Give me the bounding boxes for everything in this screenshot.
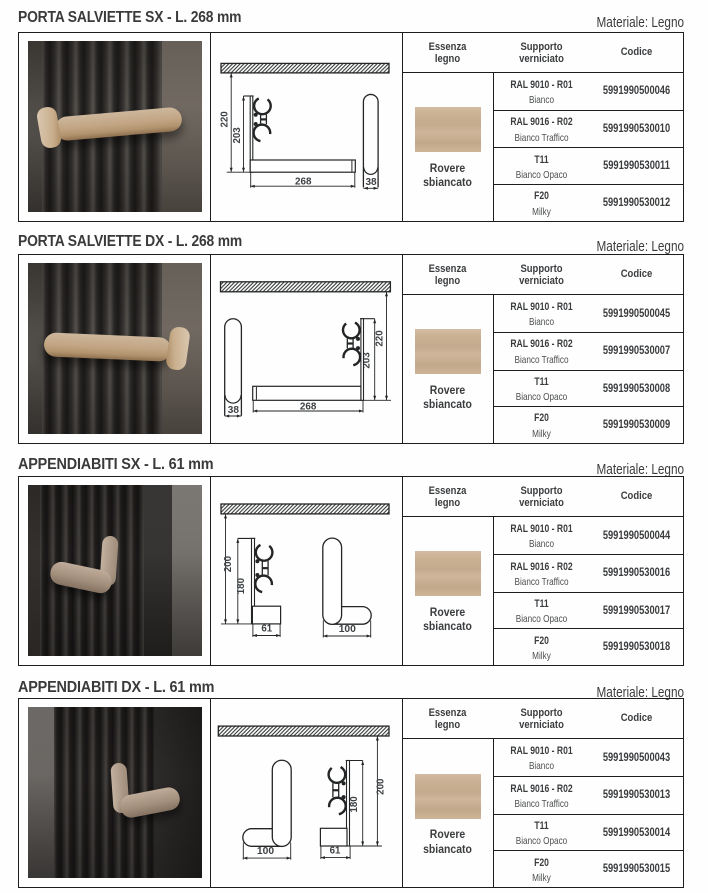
svg-text:200: 200 [375,778,387,794]
svg-text:61: 61 [330,845,341,857]
svg-text:100: 100 [257,845,274,857]
